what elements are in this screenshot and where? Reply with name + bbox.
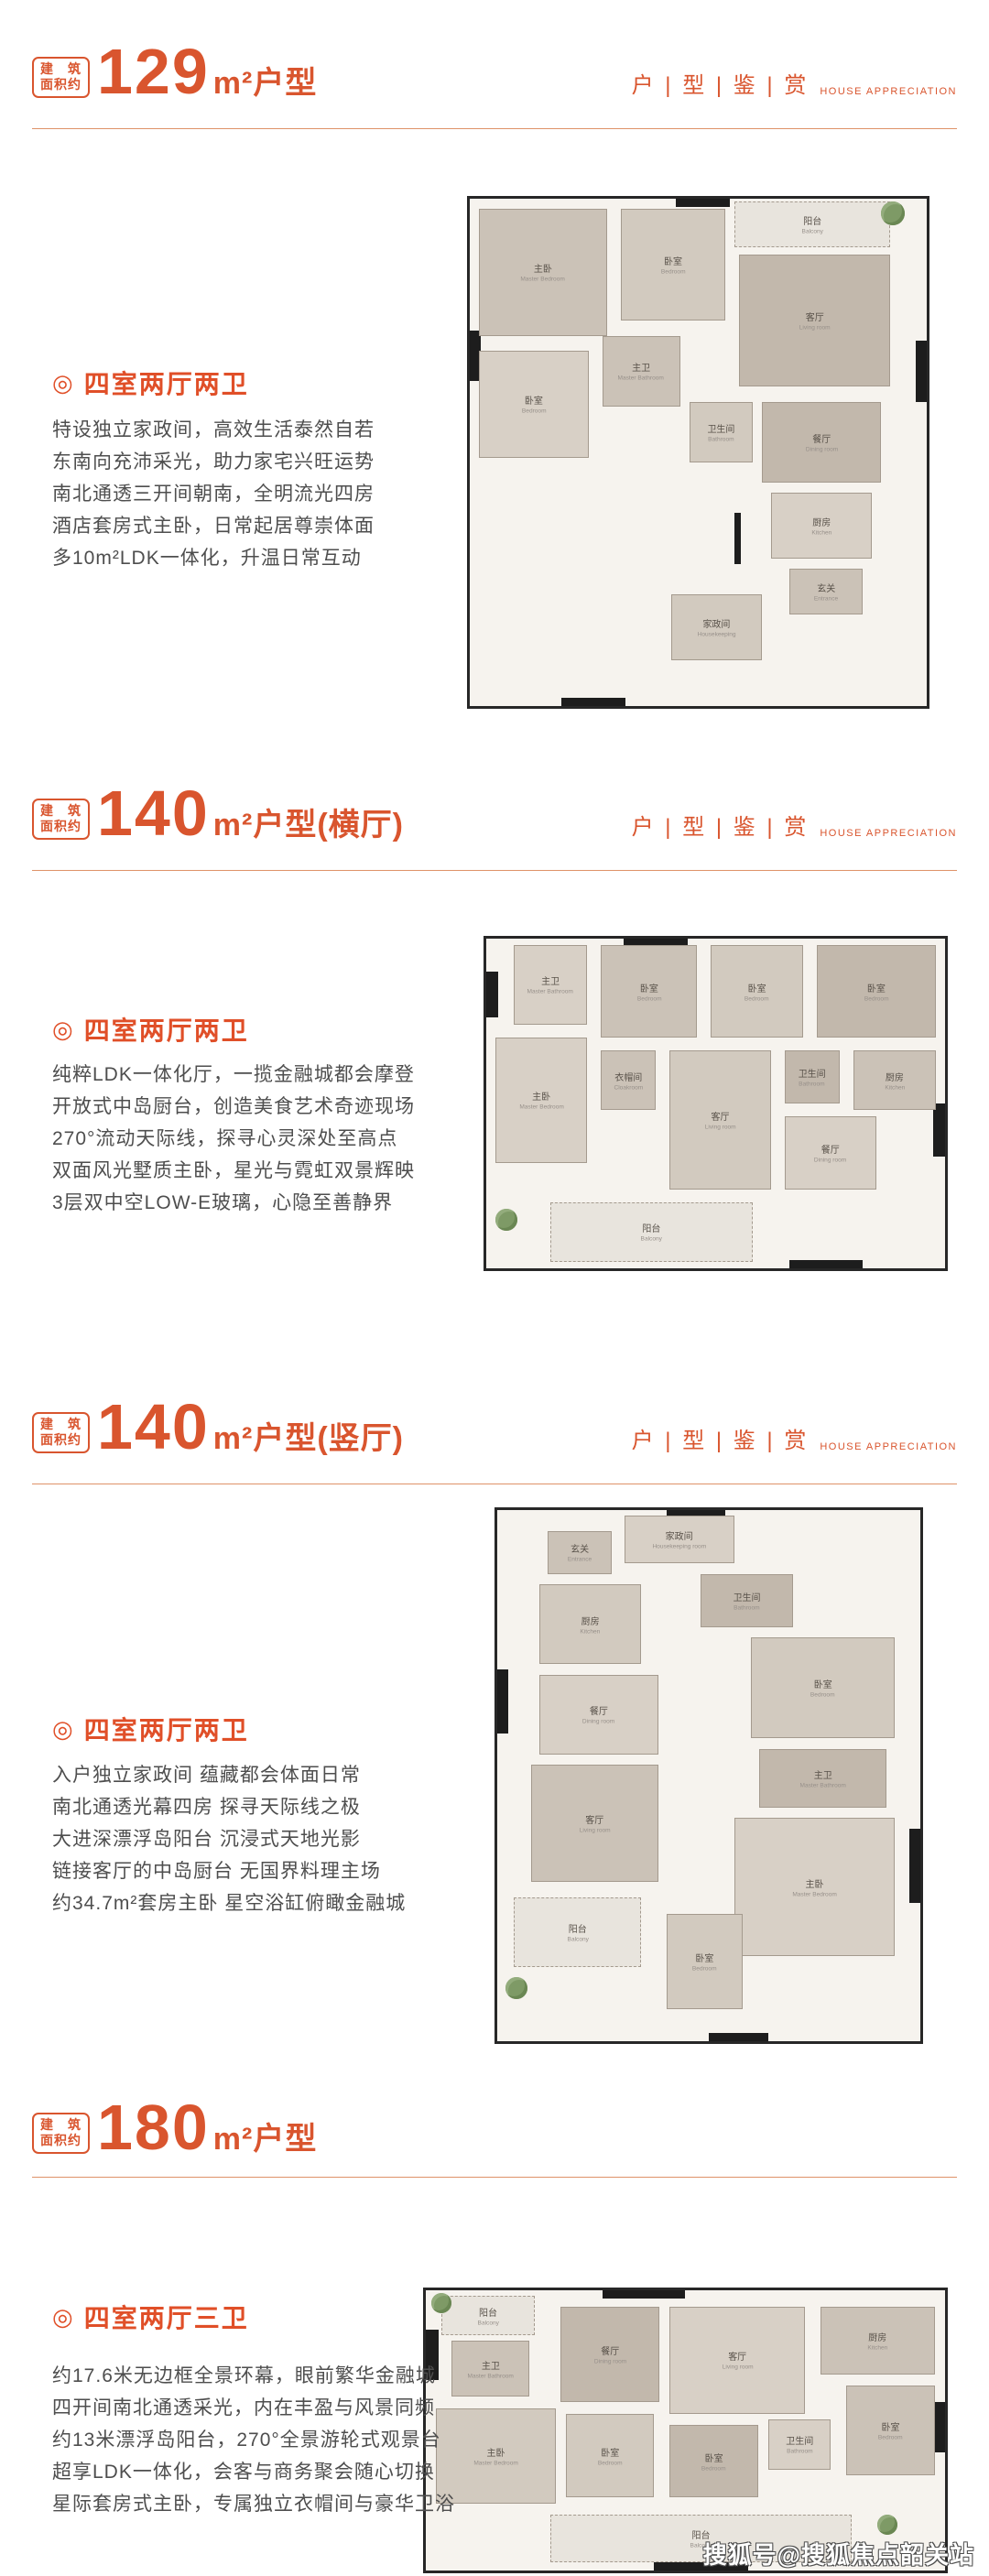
built-area-badge: 建筑 面积约 xyxy=(32,1412,90,1453)
floor-plan-room: 主卫Master Bathroom xyxy=(759,1749,886,1808)
room-label-en: Dining room xyxy=(806,446,838,452)
floor-plan-room: 厨房Kitchen xyxy=(821,2307,935,2374)
room-label-cn: 主卧 xyxy=(805,1876,823,1890)
badge-text: 面积约 xyxy=(40,77,82,93)
description-line: 大进深漂浮岛阳台 沉浸式天地光影 xyxy=(52,1823,406,1855)
floor-plan-room: 餐厅Dining room xyxy=(539,1675,658,1755)
room-type-text: 四室两厅三卫 xyxy=(84,2299,249,2335)
room-label-en: Balcony xyxy=(641,1235,662,1242)
room-label-cn: 餐厅 xyxy=(812,431,831,445)
room-label-cn: 厨房 xyxy=(886,1070,904,1083)
plant-icon xyxy=(881,201,905,225)
floor-plan-room: 卧室Bedroom xyxy=(479,351,589,457)
variant-text: (横厅) xyxy=(317,808,404,842)
wall-segment xyxy=(916,341,927,401)
area-unit-type: m²户型(竖厅) xyxy=(213,1423,404,1454)
room-label-en: Cloakroom xyxy=(614,1084,643,1091)
floor-plan-room: 卧室Bedroom xyxy=(566,2414,654,2498)
floor-plan-room: 卧室Bedroom xyxy=(621,209,726,321)
floor-plan-room: 玄关Entrance xyxy=(548,1531,611,1573)
variant-text: (竖厅) xyxy=(317,1421,404,1456)
room-label-en: Bedroom xyxy=(661,268,686,275)
wall-segment xyxy=(497,1669,508,1734)
floor-plan-room: 家政间Housekeeping room xyxy=(625,1516,734,1563)
badge-text: 筑 xyxy=(68,803,82,820)
room-label-cn: 主卧 xyxy=(532,1089,550,1103)
room-label-cn: 阳台 xyxy=(569,1921,587,1935)
room-label-en: Kitchen xyxy=(581,1627,601,1634)
plant-icon xyxy=(431,2293,451,2313)
area-number: 140 xyxy=(97,1399,210,1456)
floor-plan-room: 厨房Kitchen xyxy=(853,1050,936,1110)
room-label-en: Bedroom xyxy=(878,2434,903,2440)
room-label-en: Master Bathroom xyxy=(527,988,573,995)
wall-segment xyxy=(709,2033,768,2041)
room-label-cn: 餐厅 xyxy=(590,1703,608,1717)
unit-type-text: m²户型 xyxy=(213,808,318,842)
room-label-cn: 主卧 xyxy=(534,261,552,275)
room-type-title: ◎ 四室两厅两卫 xyxy=(52,364,249,401)
tag-en: HOUSE APPRECIATION xyxy=(820,1441,957,1452)
room-label-cn: 卫生间 xyxy=(786,2433,813,2447)
floor-plan-room: 卧室Bedroom xyxy=(669,2425,757,2498)
floor-plan-room: 餐厅Dining room xyxy=(785,1116,876,1189)
badge-text: 建 xyxy=(40,2117,54,2134)
wall-segment xyxy=(561,698,625,706)
badge-text: 面积约 xyxy=(40,1432,82,1449)
room-label-en: Master Bathroom xyxy=(468,2372,514,2378)
description-line: 四开间南北通透采光，内在丰盈与风景同频 xyxy=(52,2392,455,2424)
room-label-en: Bedroom xyxy=(637,995,662,1001)
wall-segment xyxy=(676,199,731,207)
wall-segment xyxy=(486,972,498,1017)
floor-plan-room: 阳台Balcony xyxy=(550,1202,752,1262)
house-appreciation-tag: 户 | 型 | 鉴 | 赏 HOUSE APPRECIATION xyxy=(632,1422,957,1454)
room-label-en: Master Bedroom xyxy=(792,1891,836,1897)
room-label-cn: 卧室 xyxy=(525,393,543,407)
description-line: 入户独立家政间 蕴藏都会体面日常 xyxy=(52,1759,406,1791)
built-area-badge: 建筑 面积约 xyxy=(32,799,90,840)
room-label-cn: 家政间 xyxy=(666,1528,693,1542)
header-divider xyxy=(32,870,957,871)
description-line: 多10m²LDK一体化，升温日常互动 xyxy=(52,542,375,574)
ring-icon: ◎ xyxy=(52,2303,75,2331)
section-header-140s: 建筑 面积约 140 m²户型(竖厅) 户 | 型 | 鉴 | 赏 HOUSE … xyxy=(32,1399,957,1456)
floor-plan-room: 卧室Bedroom xyxy=(817,945,936,1038)
unit-type-text: m²户型 xyxy=(213,2122,318,2157)
room-label-cn: 卧室 xyxy=(881,2419,899,2433)
room-label-cn: 厨房 xyxy=(581,1614,600,1627)
room-label-cn: 卫生间 xyxy=(707,421,734,435)
floor-plan-room: 卫生间Bathroom xyxy=(768,2419,831,2470)
room-label-en: Kitchen xyxy=(811,529,831,536)
room-label-en: Living room xyxy=(799,324,831,331)
header-divider xyxy=(32,2177,957,2178)
room-label-cn: 厨房 xyxy=(812,515,831,528)
floor-plan-room: 客厅Living room xyxy=(739,255,890,386)
tag-en: HOUSE APPRECIATION xyxy=(820,828,957,839)
description-paragraph: 约17.6米无边框全景环幕，眼前繁华金融城四开间南北通透采光，内在丰盈与风景同频… xyxy=(52,2360,455,2520)
description-line: 酒店套房式主卧，日常起居尊崇体面 xyxy=(52,510,375,542)
ring-icon: ◎ xyxy=(52,1016,75,1044)
floor-plan-room: 卧室Bedroom xyxy=(601,945,697,1038)
description-line: 开放式中岛厨台，创造美食艺术奇迹现场 xyxy=(52,1091,415,1123)
room-label-cn: 卧室 xyxy=(867,981,886,995)
badge-text: 筑 xyxy=(68,2117,82,2134)
plant-icon xyxy=(877,2515,897,2535)
room-label-en: Balcony xyxy=(802,227,823,234)
room-label-cn: 主卫 xyxy=(814,1767,832,1781)
ring-icon: ◎ xyxy=(52,1715,75,1744)
room-label-cn: 卧室 xyxy=(705,2451,723,2464)
room-label-en: Living room xyxy=(722,2364,753,2370)
description-line: 链接客厅的中岛厨台 无国界料理主场 xyxy=(52,1855,406,1887)
room-label-cn: 卧室 xyxy=(814,1677,832,1690)
room-label-cn: 玄关 xyxy=(817,581,835,594)
description-paragraph: 入户独立家政间 蕴藏都会体面日常南北通透光幕四房 探寻天际线之极大进深漂浮岛阳台… xyxy=(52,1759,406,1919)
section-header-180: 建筑 面积约 180 m²户型 xyxy=(32,2100,957,2157)
badge-text: 面积约 xyxy=(40,819,82,835)
floor-plan-140-heng: 主卫Master Bathroom卧室Bedroom卧室Bedroom卧室Bed… xyxy=(484,936,948,1271)
tag-cn: 户 | 型 | 鉴 | 赏 xyxy=(632,809,810,841)
room-label-cn: 餐厅 xyxy=(601,2343,619,2357)
room-label-cn: 家政间 xyxy=(702,616,730,630)
room-label-cn: 主卫 xyxy=(541,973,560,987)
description-line: 约34.7m²套房主卧 星空浴缸俯瞰金融城 xyxy=(52,1887,406,1919)
room-label-cn: 阳台 xyxy=(642,1221,660,1234)
room-label-en: Housekeeping room xyxy=(652,1543,706,1549)
built-area-badge: 建筑 面积约 xyxy=(32,57,90,98)
unit-type-text: m²户型 xyxy=(213,1421,318,1456)
room-label-en: Bedroom xyxy=(744,995,769,1001)
room-label-en: Bedroom xyxy=(522,408,547,414)
wall-segment xyxy=(789,1260,863,1268)
room-label-en: Dining room xyxy=(594,2358,626,2364)
floor-plan-room: 厨房Kitchen xyxy=(771,493,872,559)
room-label-en: Master Bedroom xyxy=(473,2459,517,2465)
floor-plan-room: 主卧Master Bedroom xyxy=(495,1038,587,1163)
room-label-cn: 玄关 xyxy=(571,1541,589,1555)
house-appreciation-tag: 户 | 型 | 鉴 | 赏 HOUSE APPRECIATION xyxy=(632,809,957,841)
room-label-en: Bedroom xyxy=(598,2459,623,2465)
description-paragraph: 特设独立家政间，高效生活泰然自若东南向充沛采光，助力家宅兴旺运势南北通透三开间朝… xyxy=(52,414,375,574)
wall-segment xyxy=(734,513,741,563)
floor-plan-room: 主卫Master Bathroom xyxy=(514,945,587,1024)
floor-plan-room: 餐厅Dining room xyxy=(762,402,881,484)
floor-plan-room: 客厅Living room xyxy=(669,2307,804,2413)
description-line: 3层双中空LOW-E玻璃，心隐至善静界 xyxy=(52,1187,415,1219)
room-label-cn: 阳台 xyxy=(803,213,821,227)
room-label-cn: 厨房 xyxy=(868,2330,886,2343)
description-line: 超享LDK一体化，会客与商务聚会随心切换 xyxy=(52,2456,455,2488)
ring-icon: ◎ xyxy=(52,369,75,397)
room-type-title: ◎ 四室两厅两卫 xyxy=(52,1711,249,1747)
room-type-title: ◎ 四室两厅两卫 xyxy=(52,1011,249,1048)
floor-plan-room: 卫生间Bathroom xyxy=(690,402,754,462)
unit-type-text: m²户型 xyxy=(213,66,318,101)
room-label-cn: 客厅 xyxy=(585,1812,603,1826)
description-line: 特设独立家政间，高效生活泰然自若 xyxy=(52,414,375,446)
section-header-129: 建筑 面积约 129 m²户型 户 | 型 | 鉴 | 赏 HOUSE APPR… xyxy=(32,44,957,101)
room-label-cn: 卧室 xyxy=(664,254,682,267)
room-label-en: Bathroom xyxy=(734,1603,759,1610)
wall-segment xyxy=(603,2290,686,2299)
room-label-cn: 衣帽间 xyxy=(614,1070,642,1083)
description-line: 东南向充沛采光，助力家宅兴旺运势 xyxy=(52,446,375,478)
description-line: 南北通透光幕四房 探寻天际线之极 xyxy=(52,1791,406,1823)
room-label-cn: 卫生间 xyxy=(799,1066,826,1080)
room-type-text: 四室两厅两卫 xyxy=(84,1011,249,1048)
description-line: 约17.6米无边框全景环幕，眼前繁华金融城 xyxy=(52,2360,455,2392)
floor-plan-room: 餐厅Dining room xyxy=(560,2307,659,2402)
room-label-cn: 卧室 xyxy=(695,1951,713,1964)
room-label-cn: 阳台 xyxy=(479,2305,497,2319)
tag-en: HOUSE APPRECIATION xyxy=(820,86,957,97)
floor-plan-room: 玄关Entrance xyxy=(789,569,863,614)
room-label-en: Bedroom xyxy=(864,995,889,1001)
house-appreciation-tag: 户 | 型 | 鉴 | 赏 HOUSE APPRECIATION xyxy=(632,67,957,99)
plant-icon xyxy=(505,1977,527,1999)
area-unit-type: m²户型 xyxy=(213,2124,318,2155)
room-label-cn: 主卧 xyxy=(487,2445,505,2459)
floor-plan-room: 主卧Master Bedroom xyxy=(734,1818,896,1956)
room-label-cn: 卧室 xyxy=(601,2445,619,2459)
wall-segment xyxy=(909,1829,920,1903)
floor-plan-room: 卧室Bedroom xyxy=(846,2386,934,2475)
header-divider xyxy=(32,1484,957,1484)
floor-plan-room: 家政间Housekeeping xyxy=(671,594,763,660)
floor-plan-room: 卧室Bedroom xyxy=(711,945,802,1038)
floor-plan-room: 卧室Bedroom xyxy=(751,1637,895,1738)
area-unit-type: m²户型 xyxy=(213,68,318,99)
room-label-en: Master Bathroom xyxy=(800,1782,846,1788)
floor-plan-room: 卧室Bedroom xyxy=(667,1914,743,2009)
description-line: 南北通透三开间朝南，全明流光四房 xyxy=(52,478,375,510)
room-type-text: 四室两厅两卫 xyxy=(84,364,249,401)
area-number: 140 xyxy=(97,786,210,842)
tag-cn: 户 | 型 | 鉴 | 赏 xyxy=(632,67,810,99)
room-label-en: Bathroom xyxy=(708,436,734,442)
room-label-en: Living room xyxy=(705,1124,736,1130)
room-label-en: Balcony xyxy=(477,2319,498,2325)
room-label-en: Entrance xyxy=(814,595,838,602)
room-label-en: Dining room xyxy=(814,1157,846,1163)
floor-plan-180: 阳台Balcony主卫Master Bathroom主卧Master Bedro… xyxy=(423,2288,948,2573)
room-label-cn: 主卫 xyxy=(632,360,650,374)
floor-plan-room: 阳台Balcony xyxy=(441,2296,535,2335)
sohu-watermark: 搜狐号@搜狐焦点韶关站 xyxy=(703,2537,974,2571)
description-line: 约13米漂浮岛阳台，270°全景游轮式观景台 xyxy=(52,2424,455,2456)
floor-plan-129: 阳台Balcony主卧Master Bedroom卧室Bedroom客厅Livi… xyxy=(467,196,929,709)
floor-plan-room: 主卧Master Bedroom xyxy=(479,209,607,336)
floor-plan-140-shu: 家政间Housekeeping room玄关Entrance厨房Kitchen卫… xyxy=(494,1507,923,2044)
room-label-en: Bathroom xyxy=(787,2448,812,2454)
area-number: 180 xyxy=(97,2100,210,2157)
description-paragraph: 纯粹LDK一体化厅，一揽金融城都会摩登开放式中岛厨台，创造美食艺术奇迹现场270… xyxy=(52,1059,415,1219)
room-label-en: Entrance xyxy=(568,1556,592,1562)
room-label-en: Master Bedroom xyxy=(519,1103,563,1110)
floor-plan-room: 客厅Living room xyxy=(669,1050,770,1189)
plant-icon xyxy=(495,1209,517,1231)
description-line: 纯粹LDK一体化厅，一揽金融城都会摩登 xyxy=(52,1059,415,1091)
room-label-en: Balcony xyxy=(567,1936,588,1942)
floor-plan-room: 阳台Balcony xyxy=(734,201,890,247)
floor-plan-room: 阳台Balcony xyxy=(514,1897,641,1966)
floor-plan-room: 主卫Master Bathroom xyxy=(603,336,680,408)
room-label-cn: 客厅 xyxy=(806,310,824,323)
room-label-cn: 卫生间 xyxy=(734,1590,761,1603)
room-label-en: Dining room xyxy=(582,1718,614,1724)
room-label-en: Living room xyxy=(579,1827,610,1833)
room-label-en: Bathroom xyxy=(799,1081,824,1087)
badge-text: 建 xyxy=(40,61,54,78)
badge-text: 面积约 xyxy=(40,2133,82,2149)
description-line: 双面风光墅质主卧，星光与霓虹双景辉映 xyxy=(52,1155,415,1187)
room-label-cn: 客厅 xyxy=(712,1109,730,1123)
floor-plan-room: 卫生间Bathroom xyxy=(701,1574,794,1627)
description-line: 星际套房式主卧，专属独立衣帽间与豪华卫浴 xyxy=(52,2488,455,2520)
room-label-en: Kitchen xyxy=(867,2344,887,2351)
room-label-en: Master Bedroom xyxy=(521,276,565,282)
built-area-badge: 建筑 面积约 xyxy=(32,2113,90,2154)
section-header-140h: 建筑 面积约 140 m²户型(横厅) 户 | 型 | 鉴 | 赏 HOUSE … xyxy=(32,786,957,842)
room-label-en: Bedroom xyxy=(701,2464,726,2471)
tag-cn: 户 | 型 | 鉴 | 赏 xyxy=(632,1422,810,1454)
room-type-title: ◎ 四室两厅三卫 xyxy=(52,2299,249,2335)
room-label-en: Kitchen xyxy=(885,1084,905,1091)
badge-text: 筑 xyxy=(68,1417,82,1433)
wall-segment xyxy=(933,1103,945,1157)
floor-plan-room: 主卫Master Bathroom xyxy=(451,2341,529,2397)
room-label-cn: 卧室 xyxy=(640,981,658,995)
floor-plan-room: 衣帽间Cloakroom xyxy=(601,1050,656,1110)
room-label-cn: 主卫 xyxy=(482,2358,500,2372)
room-label-cn: 客厅 xyxy=(728,2349,746,2363)
badge-text: 建 xyxy=(40,803,54,820)
room-label-en: Housekeeping xyxy=(697,631,735,637)
floor-plan-room: 厨房Kitchen xyxy=(539,1584,641,1664)
room-type-text: 四室两厅两卫 xyxy=(84,1711,249,1747)
area-number: 129 xyxy=(97,44,210,101)
badge-text: 筑 xyxy=(68,61,82,78)
badge-text: 建 xyxy=(40,1417,54,1433)
room-label-en: Bedroom xyxy=(692,1965,717,1972)
header-divider xyxy=(32,128,957,129)
room-label-cn: 卧室 xyxy=(748,981,766,995)
room-label-cn: 餐厅 xyxy=(821,1142,840,1156)
description-line: 270°流动天际线，探寻心灵深处至高点 xyxy=(52,1123,415,1155)
room-label-en: Master Bathroom xyxy=(618,375,664,381)
room-label-en: Bedroom xyxy=(810,1691,835,1698)
floor-plan-room: 客厅Living room xyxy=(531,1765,658,1882)
area-unit-type: m²户型(横厅) xyxy=(213,810,404,841)
floor-plan-room: 卫生间Bathroom xyxy=(785,1050,840,1103)
